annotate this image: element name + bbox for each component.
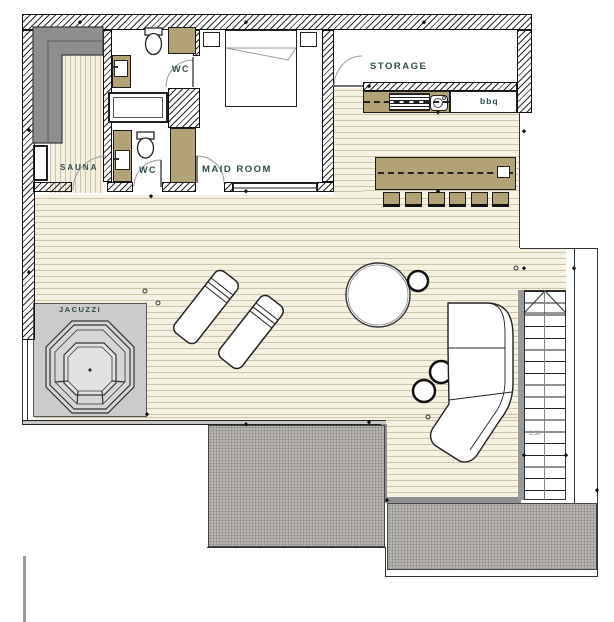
dining-chair [428, 192, 445, 207]
wc-upper-faucet [113, 66, 118, 68]
bbq-sink [430, 95, 448, 111]
wc-lower-faucet [114, 158, 119, 160]
jacuzzi-pad [33, 303, 147, 417]
boundary-step-top [520, 248, 598, 249]
deck-stair-landing [520, 248, 566, 290]
maid-room-window [233, 182, 317, 192]
wall-wc-maid-mid [168, 88, 200, 128]
sauna-label: SAUNA [60, 163, 98, 172]
bed [225, 30, 297, 107]
dining-chair [405, 192, 422, 207]
sauna-floor [50, 53, 103, 193]
boundary-right-outer [597, 248, 598, 577]
boundary-right-inner [574, 248, 575, 503]
wc-lower-label: WC [139, 165, 157, 175]
wall-bottom-seg-4 [224, 182, 233, 192]
sauna-heater [33, 145, 48, 181]
boundary-left-lower-b [27, 340, 28, 420]
toilet-icon [137, 132, 154, 158]
door-arc-storage [334, 56, 362, 87]
wc-upper-label: WC [172, 64, 190, 74]
gravel-bottom-block [387, 503, 597, 570]
table-placemat [497, 166, 510, 178]
boundary-bottom-step-vertical [385, 547, 386, 577]
boundary-bottom-step-horizontal [207, 547, 386, 548]
bbq-label: bbq [480, 96, 499, 106]
jacuzzi-label: JACUZZI [59, 305, 101, 314]
leader-line-bottom-left [23, 556, 26, 622]
wc-lower-closet [170, 128, 196, 183]
storage-label: STORAGE [370, 61, 427, 72]
wc-upper-sink [114, 60, 128, 77]
deck-lower [387, 420, 520, 497]
wall-right-building [517, 30, 532, 113]
nightstand-left [203, 32, 220, 47]
boundary-bottom [385, 576, 598, 577]
wc-lower-sink [115, 150, 130, 170]
wall-bottom-seg-3 [162, 182, 196, 192]
maid-room-label: MAID ROOM [202, 164, 272, 175]
boundary-left-lower-a [22, 340, 23, 425]
wall-bottom-seg-1 [33, 182, 72, 192]
stair-dimension-label: 1.50 [529, 431, 541, 437]
dining-chair [383, 192, 400, 207]
wc-upper-closet [168, 27, 196, 54]
deck-strip-between-buildings [334, 88, 363, 195]
wall-maid-right [322, 30, 334, 182]
dining-table-centerline [378, 172, 513, 174]
bbq-counter-centerline [364, 101, 449, 103]
toilet-icon [145, 28, 162, 55]
wall-storage-bottom [363, 82, 517, 91]
dining-chair [492, 192, 509, 207]
wall-bottom-seg-2 [107, 182, 133, 192]
stair-stringer [544, 290, 545, 500]
staircase [524, 290, 566, 500]
floor-plan-canvas: SAUNA WC WC MAID ROOM STORAGE bbq JACUZZ… [0, 0, 614, 622]
wall-top [22, 14, 532, 30]
wall-bottom-seg-5 [317, 182, 334, 192]
dining-chair [471, 192, 488, 207]
bathtub [108, 92, 168, 123]
gravel-left-block [208, 425, 385, 547]
nightstand-right [300, 32, 317, 47]
deck-right-edge [519, 113, 520, 248]
dining-chair [449, 192, 466, 207]
